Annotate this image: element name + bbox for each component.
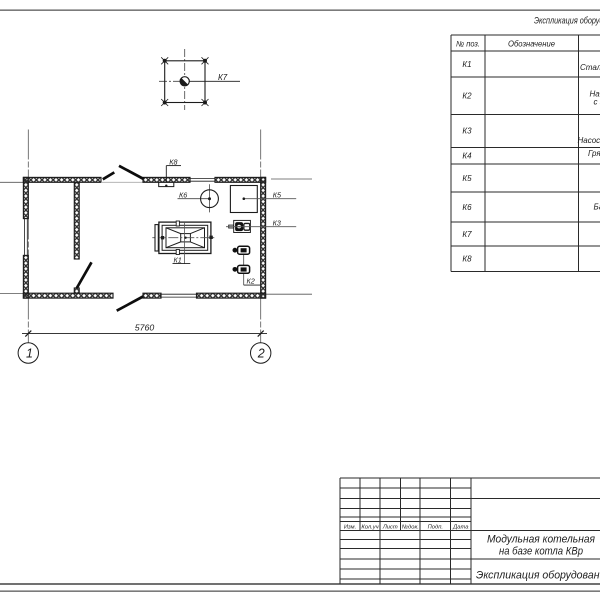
svg-text:Экспликация оборудования: Экспликация оборудования [534, 16, 600, 26]
svg-text:К5: К5 [273, 190, 282, 199]
svg-text:К7: К7 [462, 230, 472, 239]
svg-text:№ поз.: № поз. [456, 40, 480, 49]
svg-text:Обозначение: Обозначение [508, 40, 556, 49]
svg-text:Насос подпит.: Насос подпит. [578, 136, 600, 145]
svg-text:Грязевик: Грязевик [588, 149, 600, 158]
svg-text:К8: К8 [462, 255, 472, 264]
svg-text:Экспликация оборудования: Экспликация оборудования [476, 570, 600, 582]
svg-text:Подп.: Подп. [428, 524, 443, 530]
svg-text:5760: 5760 [135, 323, 155, 333]
svg-text:К1: К1 [462, 60, 471, 69]
svg-text:К3: К3 [273, 219, 281, 228]
svg-text:Модульная котельная: Модульная котельная [487, 534, 595, 546]
svg-text:Лист: Лист [382, 524, 398, 530]
svg-text:К2: К2 [462, 92, 472, 101]
svg-text:№док.: №док. [402, 524, 419, 530]
svg-text:К1: К1 [174, 256, 182, 265]
svg-text:К3: К3 [462, 127, 472, 136]
svg-text:на базе котла КВр: на базе котла КВр [499, 546, 583, 558]
svg-text:К6: К6 [462, 203, 472, 212]
svg-text:Кол.уч: Кол.уч [361, 524, 378, 530]
svg-text:К5: К5 [462, 174, 472, 183]
svg-text:К4: К4 [462, 152, 472, 161]
svg-text:Бак мембр.: Бак мембр. [594, 203, 600, 212]
svg-text:К8: К8 [169, 157, 177, 166]
svg-text:Дата: Дата [452, 524, 469, 530]
svg-text:с эл.дв.: с эл.дв. [594, 98, 600, 107]
svg-text:Стальной котел КВр: Стальной котел КВр [580, 63, 600, 72]
svg-text:2: 2 [257, 347, 265, 361]
svg-text:1: 1 [26, 347, 33, 361]
svg-text:К7: К7 [218, 73, 228, 82]
svg-text:К2: К2 [247, 276, 255, 285]
svg-text:К6: К6 [179, 190, 187, 199]
svg-text:Изм.: Изм. [344, 524, 356, 530]
